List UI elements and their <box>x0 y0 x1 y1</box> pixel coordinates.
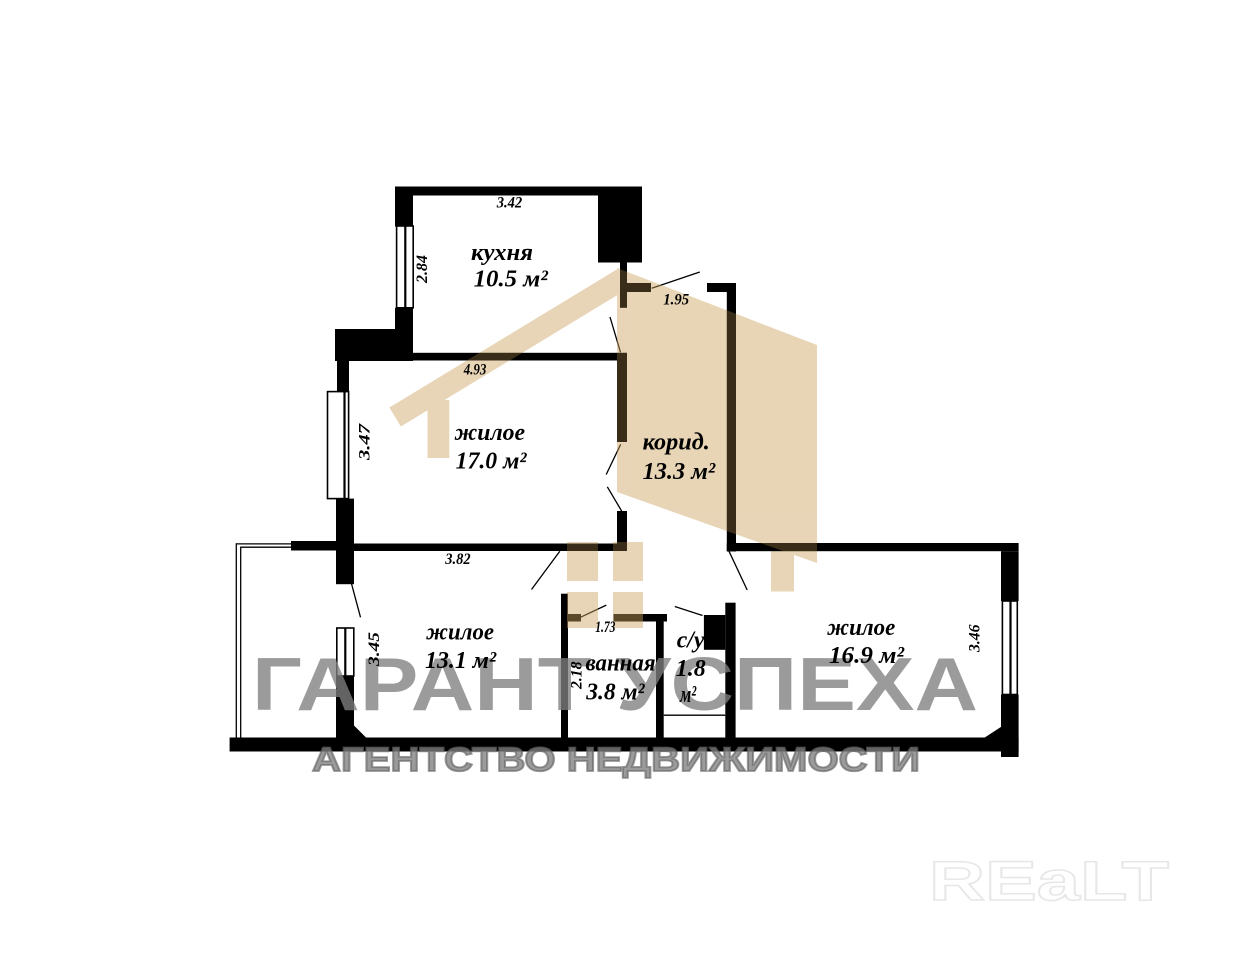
svg-text:кухня: кухня <box>471 239 533 266</box>
svg-text:1.95: 1.95 <box>663 292 689 309</box>
svg-text:13.3 м²: 13.3 м² <box>643 458 716 485</box>
svg-text:3.46: 3.46 <box>967 624 984 653</box>
svg-text:2.18: 2.18 <box>569 661 586 690</box>
svg-text:АГЕНТСТВО НЕДВИЖИМОСТИ: АГЕНТСТВО НЕДВИЖИМОСТИ <box>312 741 920 779</box>
svg-text:3.47: 3.47 <box>357 422 374 461</box>
svg-text:10.5 м²: 10.5 м² <box>474 265 549 292</box>
svg-text:жилое: жилое <box>425 619 494 646</box>
svg-text:1.8: 1.8 <box>676 655 706 682</box>
svg-text:16.9 м²: 16.9 м² <box>829 642 905 669</box>
svg-text:м²: м² <box>679 681 696 708</box>
svg-text:REaLT: REaLT <box>929 849 1169 912</box>
svg-text:жилое: жилое <box>826 614 895 641</box>
svg-text:13.1 м²: 13.1 м² <box>425 647 497 674</box>
svg-text:4.93: 4.93 <box>463 362 487 379</box>
svg-text:с/у: с/у <box>677 627 705 654</box>
svg-text:корид.: корид. <box>643 429 710 456</box>
svg-text:3.8 м²: 3.8 м² <box>585 679 645 706</box>
svg-text:1.73: 1.73 <box>595 619 616 636</box>
svg-text:3.42: 3.42 <box>496 195 523 212</box>
svg-text:жилое: жилое <box>454 419 526 446</box>
svg-text:3.45: 3.45 <box>366 632 383 668</box>
svg-text:2.84: 2.84 <box>414 255 431 284</box>
svg-text:3.82: 3.82 <box>444 551 471 568</box>
svg-text:ванная: ванная <box>586 649 656 676</box>
svg-text:17.0 м²: 17.0 м² <box>456 447 528 474</box>
